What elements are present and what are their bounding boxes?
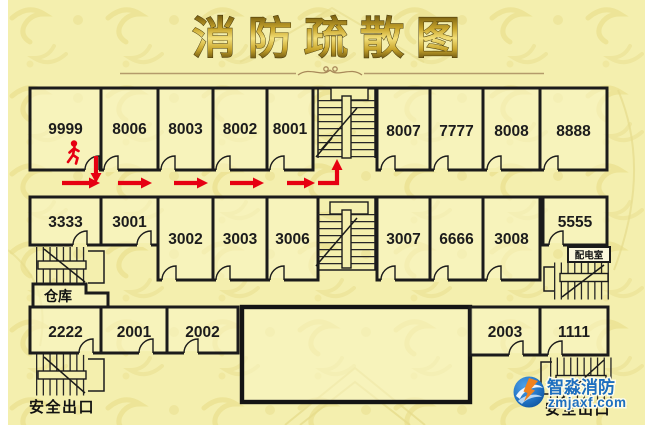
logo-site-text: zmjaxf.com	[548, 395, 627, 410]
room-label: 8007	[386, 123, 420, 140]
room-label: 2002	[185, 324, 219, 341]
room-label: 3002	[168, 231, 202, 248]
room-label: 1111	[558, 324, 590, 341]
room-label: 6666	[439, 231, 474, 248]
logo-brand-text: 智淼消防	[547, 377, 615, 397]
logo: 智淼消防 zmjaxf.com	[514, 377, 627, 411]
room-label: 3333	[48, 214, 83, 231]
room-label: 2222	[48, 324, 82, 341]
room-label: 3007	[386, 231, 420, 248]
room-label: 8888	[556, 123, 591, 140]
room-label: 8006	[112, 121, 147, 138]
room-label: 3001	[112, 214, 147, 231]
fire-evacuation-map: 消防疏散图	[0, 0, 645, 434]
room-label: 8008	[494, 123, 529, 140]
room-label: 8003	[168, 121, 203, 138]
room-label: 8002	[223, 121, 257, 138]
room-label: 3003	[223, 231, 258, 248]
warehouse-label: 仓库	[43, 288, 72, 304]
room-label: 3006	[275, 231, 310, 248]
safety-exit-left-label: 安全出口	[29, 398, 95, 416]
room-label: 8001	[273, 121, 308, 138]
main-hall	[242, 307, 470, 402]
room-label: 5555	[558, 214, 593, 231]
room-label: 3008	[494, 231, 529, 248]
room-label: 9999	[48, 121, 83, 138]
evacuation-map-canvas: 消防疏散图	[0, 0, 645, 434]
page-title: 消防疏散图	[192, 14, 472, 63]
power-room-label: 配电室	[575, 250, 604, 262]
room-label: 7777	[439, 123, 473, 140]
room-label: 2001	[117, 324, 152, 341]
room-label: 2003	[488, 324, 523, 341]
